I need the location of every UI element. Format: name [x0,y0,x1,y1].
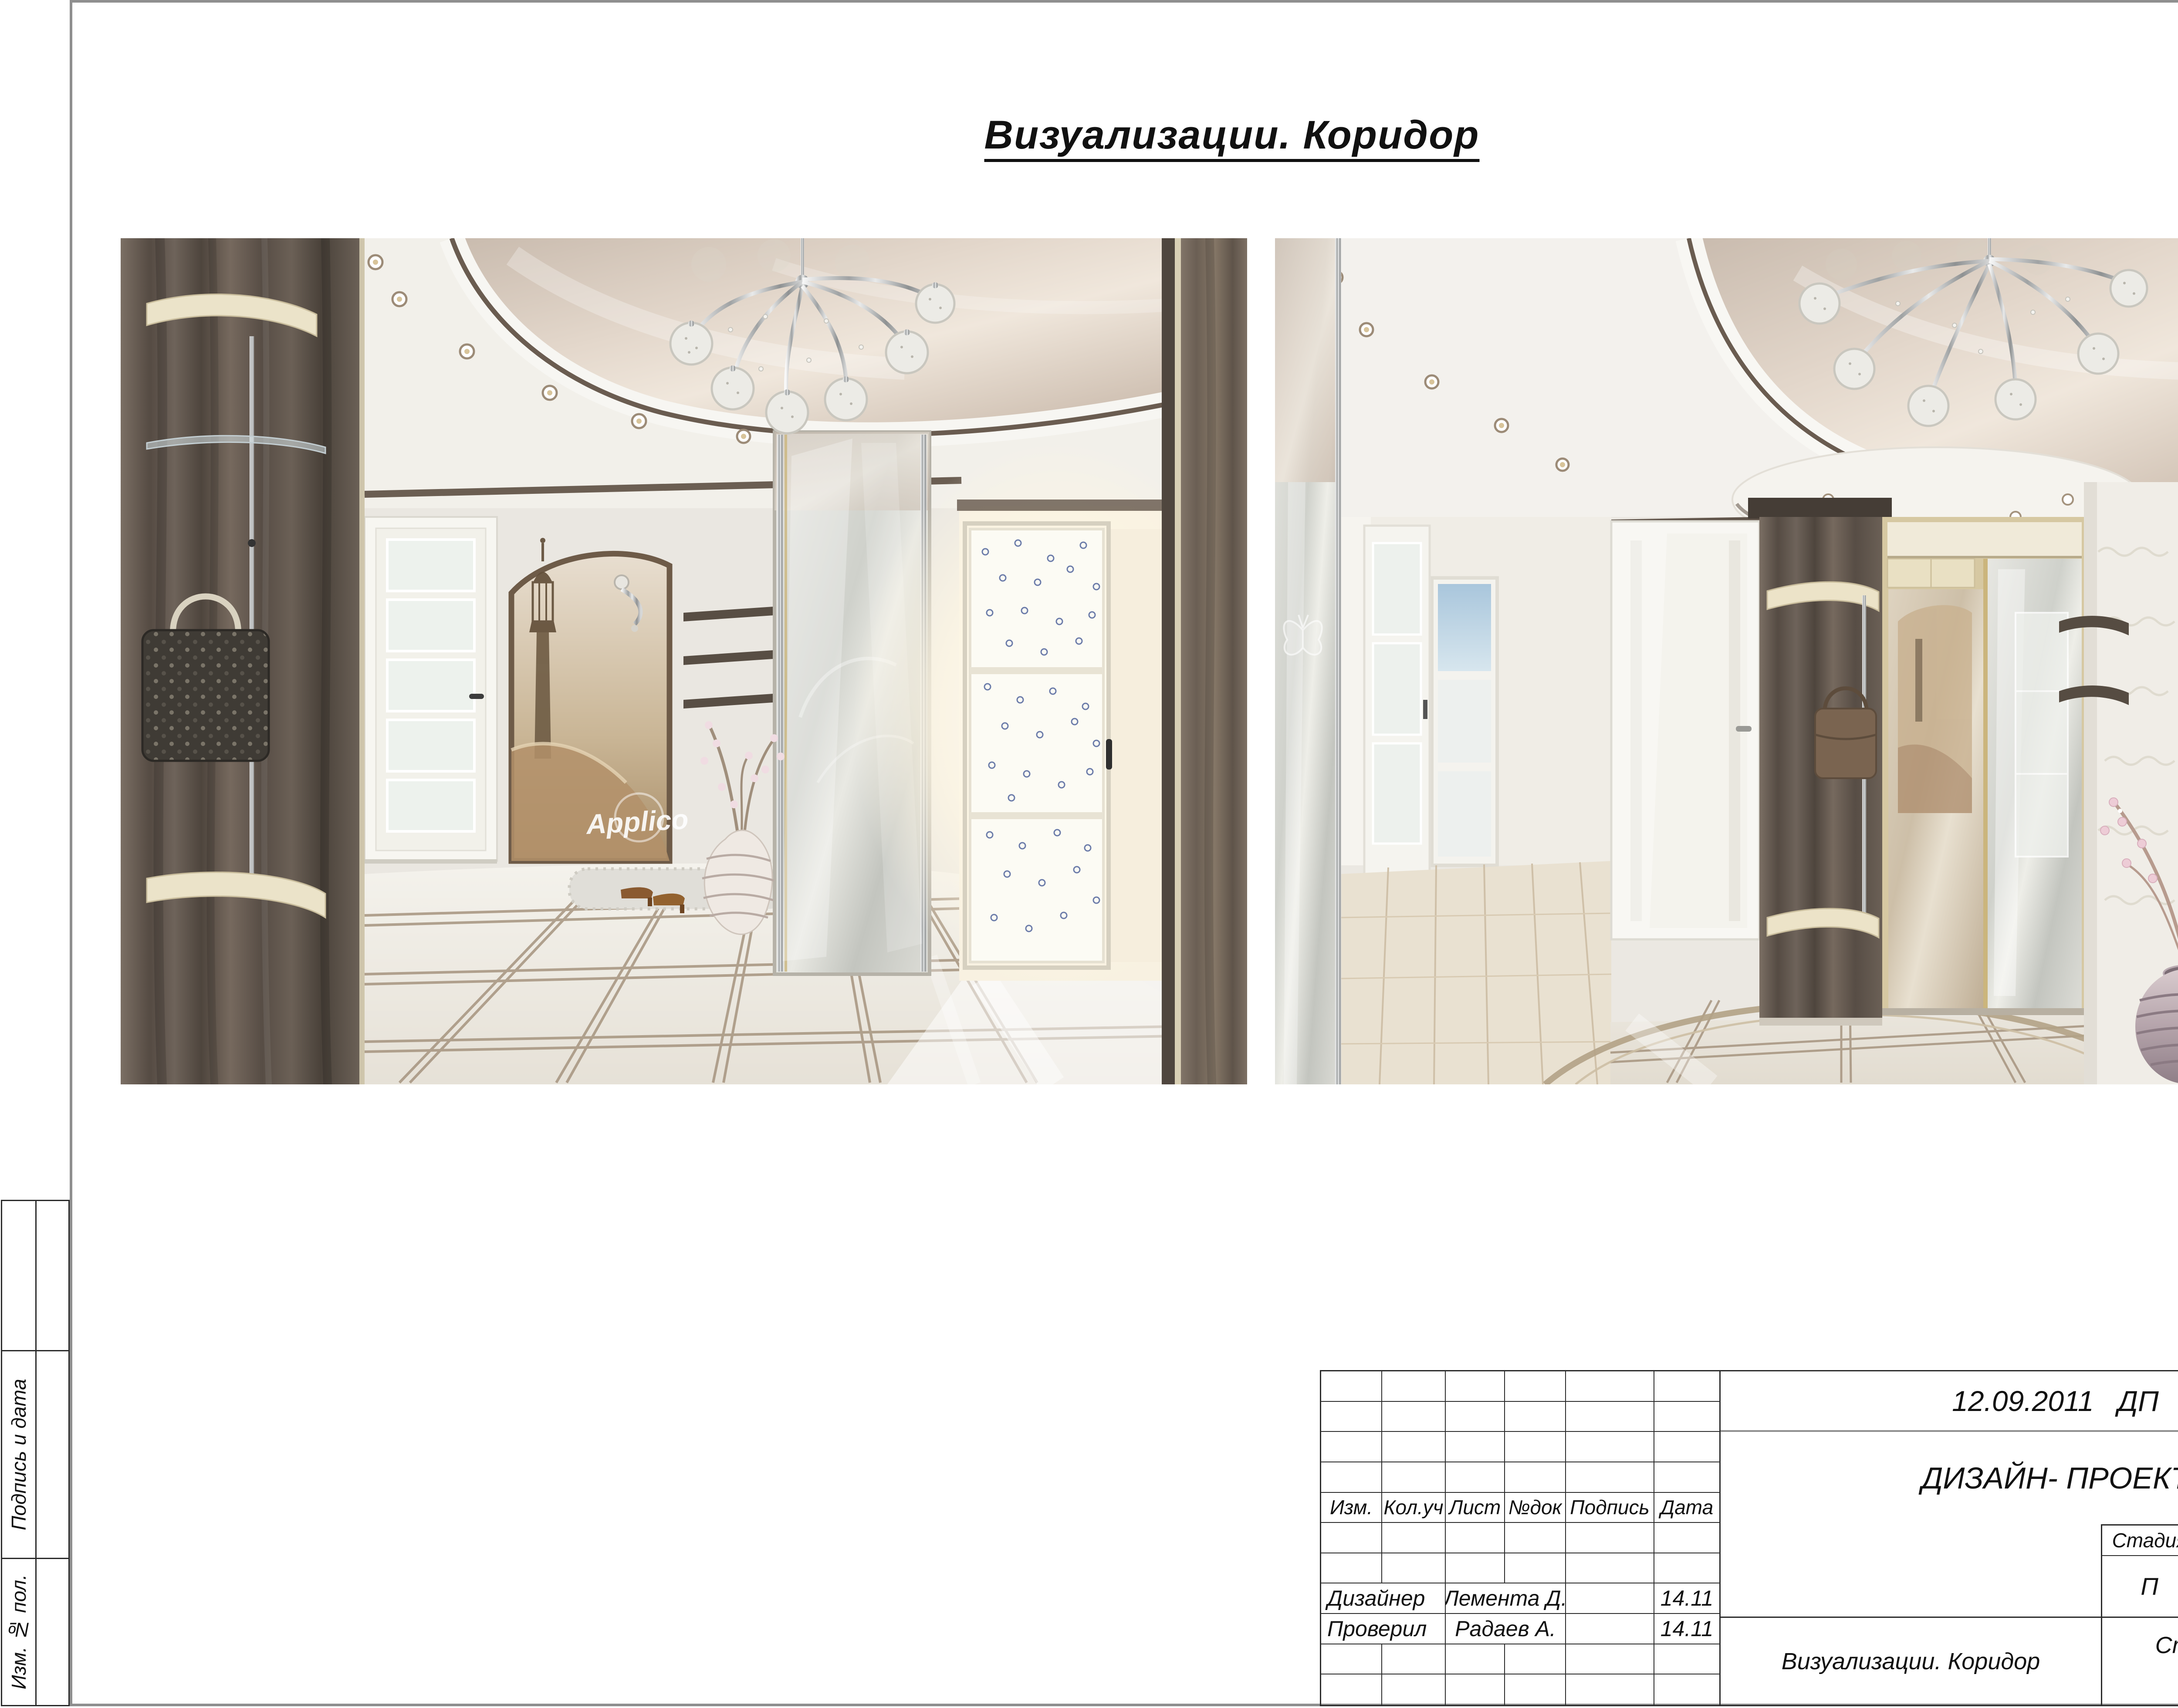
chrome-pole [250,336,254,898]
stage-value: П [2102,1556,2178,1617]
open-wardrobe-unit [1748,498,1892,1026]
checker-signature [1566,1614,1654,1644]
mirror-wardrobe-left-edge [1275,238,1341,1084]
wall-mural: Applico [511,538,689,861]
table-cell [1566,1553,1654,1584]
header-ndok: №док [1505,1493,1566,1523]
sheet-title-cell: Визуализации. Коридор [1721,1618,2101,1705]
stage-table: Стадия Лист Листов П 16 26 [2101,1524,2178,1617]
header-izm: Изм. [1321,1493,1382,1523]
table-cell [1566,1462,1654,1493]
table-cell [1566,1674,1654,1705]
hanging-bag [142,630,269,761]
table-cell [1321,1402,1382,1432]
designer-name: Лемента Д. [1446,1583,1566,1614]
table-cell [1566,1523,1654,1553]
table-cell [1382,1462,1446,1493]
margin-divider [35,1201,37,1350]
table-cell [1505,1523,1566,1553]
margin-cell-top [1,1200,70,1351]
table-cell [1505,1402,1566,1432]
table-cell [1382,1371,1446,1402]
table-cell [1505,1462,1566,1493]
table-cell [1446,1402,1505,1432]
page-title: Визуализации. Коридор [72,112,2178,158]
door-handle [1736,726,1752,732]
hall-wood-floor [1340,861,1611,1084]
table-cell [1566,1432,1654,1462]
table-cell [1446,1553,1505,1584]
table-cell [1654,1371,1719,1402]
margin-label-signature-date: Подпись и дата [7,1379,30,1530]
table-cell [1446,1371,1505,1402]
table-cell [1566,1371,1654,1402]
margin-divider [35,1559,37,1705]
table-cell [1505,1371,1566,1402]
mirror-wardrobe [1882,517,2087,1015]
white-door [1611,521,1759,939]
table-cell [1382,1523,1446,1553]
table-cell [1321,1432,1382,1462]
table-cell [1654,1402,1719,1432]
studio-line-1: Студия дизайна [2155,1630,2178,1661]
page-title-text: Визуализации. Коридор [984,113,1480,157]
table-cell [1321,1523,1382,1553]
entry-door [365,517,497,864]
margin-strip: Подпись и дата Изм. № пол. [1,1200,70,1706]
table-cell [1654,1523,1719,1553]
wood-panel-right [1162,238,1247,1084]
table-cell [1446,1674,1505,1705]
hallway [1340,517,1622,1084]
table-cell [1505,1644,1566,1675]
hanging-bag [1815,709,1876,778]
wardrobe-left [121,238,365,1084]
header-koluch: Кол.уч [1382,1493,1446,1523]
table-cell [1505,1432,1566,1462]
margin-cell-inv-number: Изм. № пол. [1,1558,70,1706]
designer-role: Дизайнер [1321,1583,1446,1614]
table-cell [1446,1432,1505,1462]
table-cell [1382,1644,1446,1675]
table-cell [1446,1644,1505,1675]
margin-cell-signature-date: Подпись и дата [1,1350,70,1559]
stage-label: Стадия [2102,1526,2178,1556]
table-cell [1321,1674,1382,1705]
margin-divider [35,1351,37,1558]
table-cell [1505,1674,1566,1705]
table-cell [1382,1432,1446,1462]
frosted-panes [387,540,474,831]
table-cell [1446,1462,1505,1493]
header-podpis: Подпись [1566,1493,1654,1523]
table-cell [1566,1402,1654,1432]
render-corridor-view-2 [1275,238,2178,1084]
table-cell [1321,1462,1382,1493]
title-block-revision-table: Изм. Кол.уч Лист №док Подпись Дата Дизай… [1320,1370,1721,1706]
table-cell [1321,1644,1382,1675]
table-cell [1321,1553,1382,1584]
title-block-bottom: Визуализации. Коридор Студия дизайна “Ar… [1721,1617,2178,1705]
table-cell [1382,1553,1446,1584]
render-corridor-view-1: Applico [121,238,1247,1084]
designer-signature [1566,1583,1654,1614]
checker-date: 14.11 [1654,1614,1719,1644]
table-cell [1505,1553,1566,1584]
checker-role: Проверил [1321,1614,1446,1644]
near-sliding-door [1364,526,1430,874]
margin-label-inv-number: Изм. № пол. [7,1574,30,1689]
title-block: Изм. Кол.уч Лист №док Подпись Дата Дизай… [1320,1370,2178,1706]
table-cell [1446,1523,1505,1553]
mirror-reflection-mural [1898,605,1972,813]
checker-name: Радаев А. [1446,1614,1566,1644]
title-block-main: 12.09.2011 ДП ДИЗАЙН- ПРОЕКТ Стадия Лист… [1721,1370,2178,1706]
table-cell [1654,1553,1719,1584]
drawing-sheet: Визуализации. Коридор [0,0,2178,1708]
mural-watermark: Applico [585,803,689,840]
far-door [1432,578,1497,865]
table-cell [1321,1371,1382,1402]
sliding-door-handle [1106,739,1112,770]
table-cell [1654,1644,1719,1675]
table-cell [1654,1462,1719,1493]
table-cell [1566,1644,1654,1675]
studio-cell: Студия дизайна “ArtVision” [2101,1618,2178,1705]
table-cell [1654,1432,1719,1462]
table-cell [1382,1402,1446,1432]
mirror-reflection-door [2016,613,2068,857]
doc-type-cell: ДИЗАЙН- ПРОЕКТ [1721,1432,2178,1524]
table-cell [1382,1674,1446,1705]
header-data: Дата [1654,1493,1719,1523]
header-list: Лист [1446,1493,1505,1523]
table-cell [1654,1674,1719,1705]
designer-date: 14.11 [1654,1583,1719,1614]
date-stage-cell: 12.09.2011 ДП [1721,1371,2178,1432]
door-handle [469,694,484,699]
